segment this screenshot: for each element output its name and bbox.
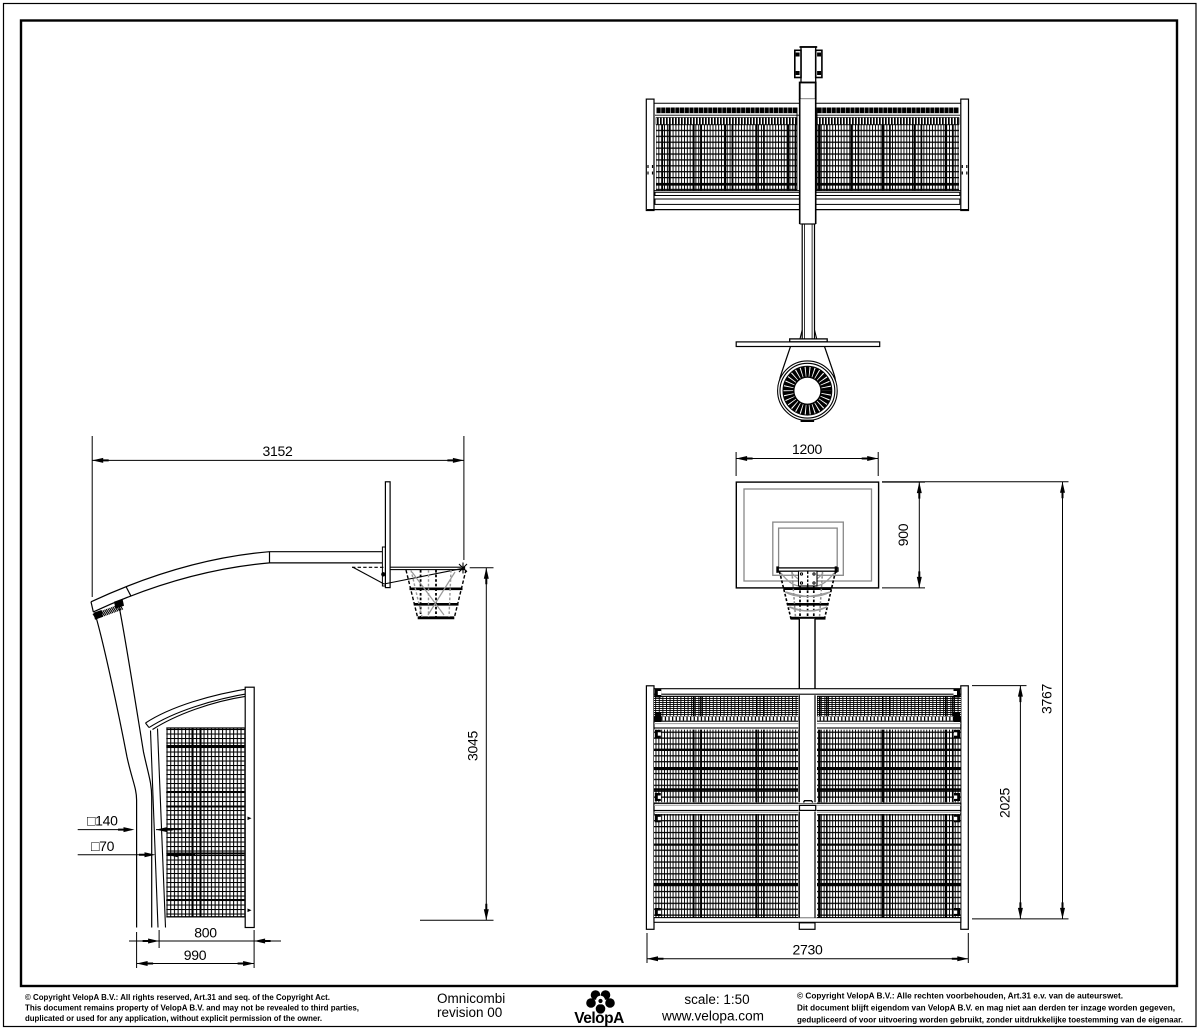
svg-text:© Copyright VelopA B.V.: Alle: © Copyright VelopA B.V.: Alle rechten vo… xyxy=(797,992,1123,1001)
svg-text:990: 990 xyxy=(184,947,207,963)
svg-text:gedupliceerd of voor uitvoerin: gedupliceerd of voor uitvoering worden g… xyxy=(797,1016,1183,1025)
svg-text:Omnicombi: Omnicombi xyxy=(437,991,505,1006)
svg-text:revision 00: revision 00 xyxy=(437,1005,502,1020)
svg-text:3767: 3767 xyxy=(1039,684,1055,714)
svg-text:2025: 2025 xyxy=(997,788,1013,818)
svg-text:duplicated or used for any app: duplicated or used for any application, … xyxy=(25,1014,322,1023)
svg-text:scale: 1:50: scale: 1:50 xyxy=(684,992,749,1007)
svg-text:900: 900 xyxy=(895,523,911,546)
svg-text:This document remains property: This document remains property of VelopA… xyxy=(25,1004,359,1013)
svg-text:© Copyright VelopA B.V.: All r: © Copyright VelopA B.V.: All rights rese… xyxy=(25,993,330,1002)
svg-text:3152: 3152 xyxy=(263,443,293,459)
svg-text:□70: □70 xyxy=(91,838,115,854)
svg-text:www.velopa.com: www.velopa.com xyxy=(661,1009,764,1024)
svg-text:□140: □140 xyxy=(87,813,118,829)
svg-text:800: 800 xyxy=(194,925,217,941)
svg-text:1200: 1200 xyxy=(792,441,822,457)
svg-text:Dit document blijft eigendom v: Dit document blijft eigendom van VelopA … xyxy=(797,1004,1175,1013)
svg-text:3045: 3045 xyxy=(465,731,481,761)
svg-text:2730: 2730 xyxy=(793,942,823,958)
svg-text:VelopA: VelopA xyxy=(574,1010,624,1027)
